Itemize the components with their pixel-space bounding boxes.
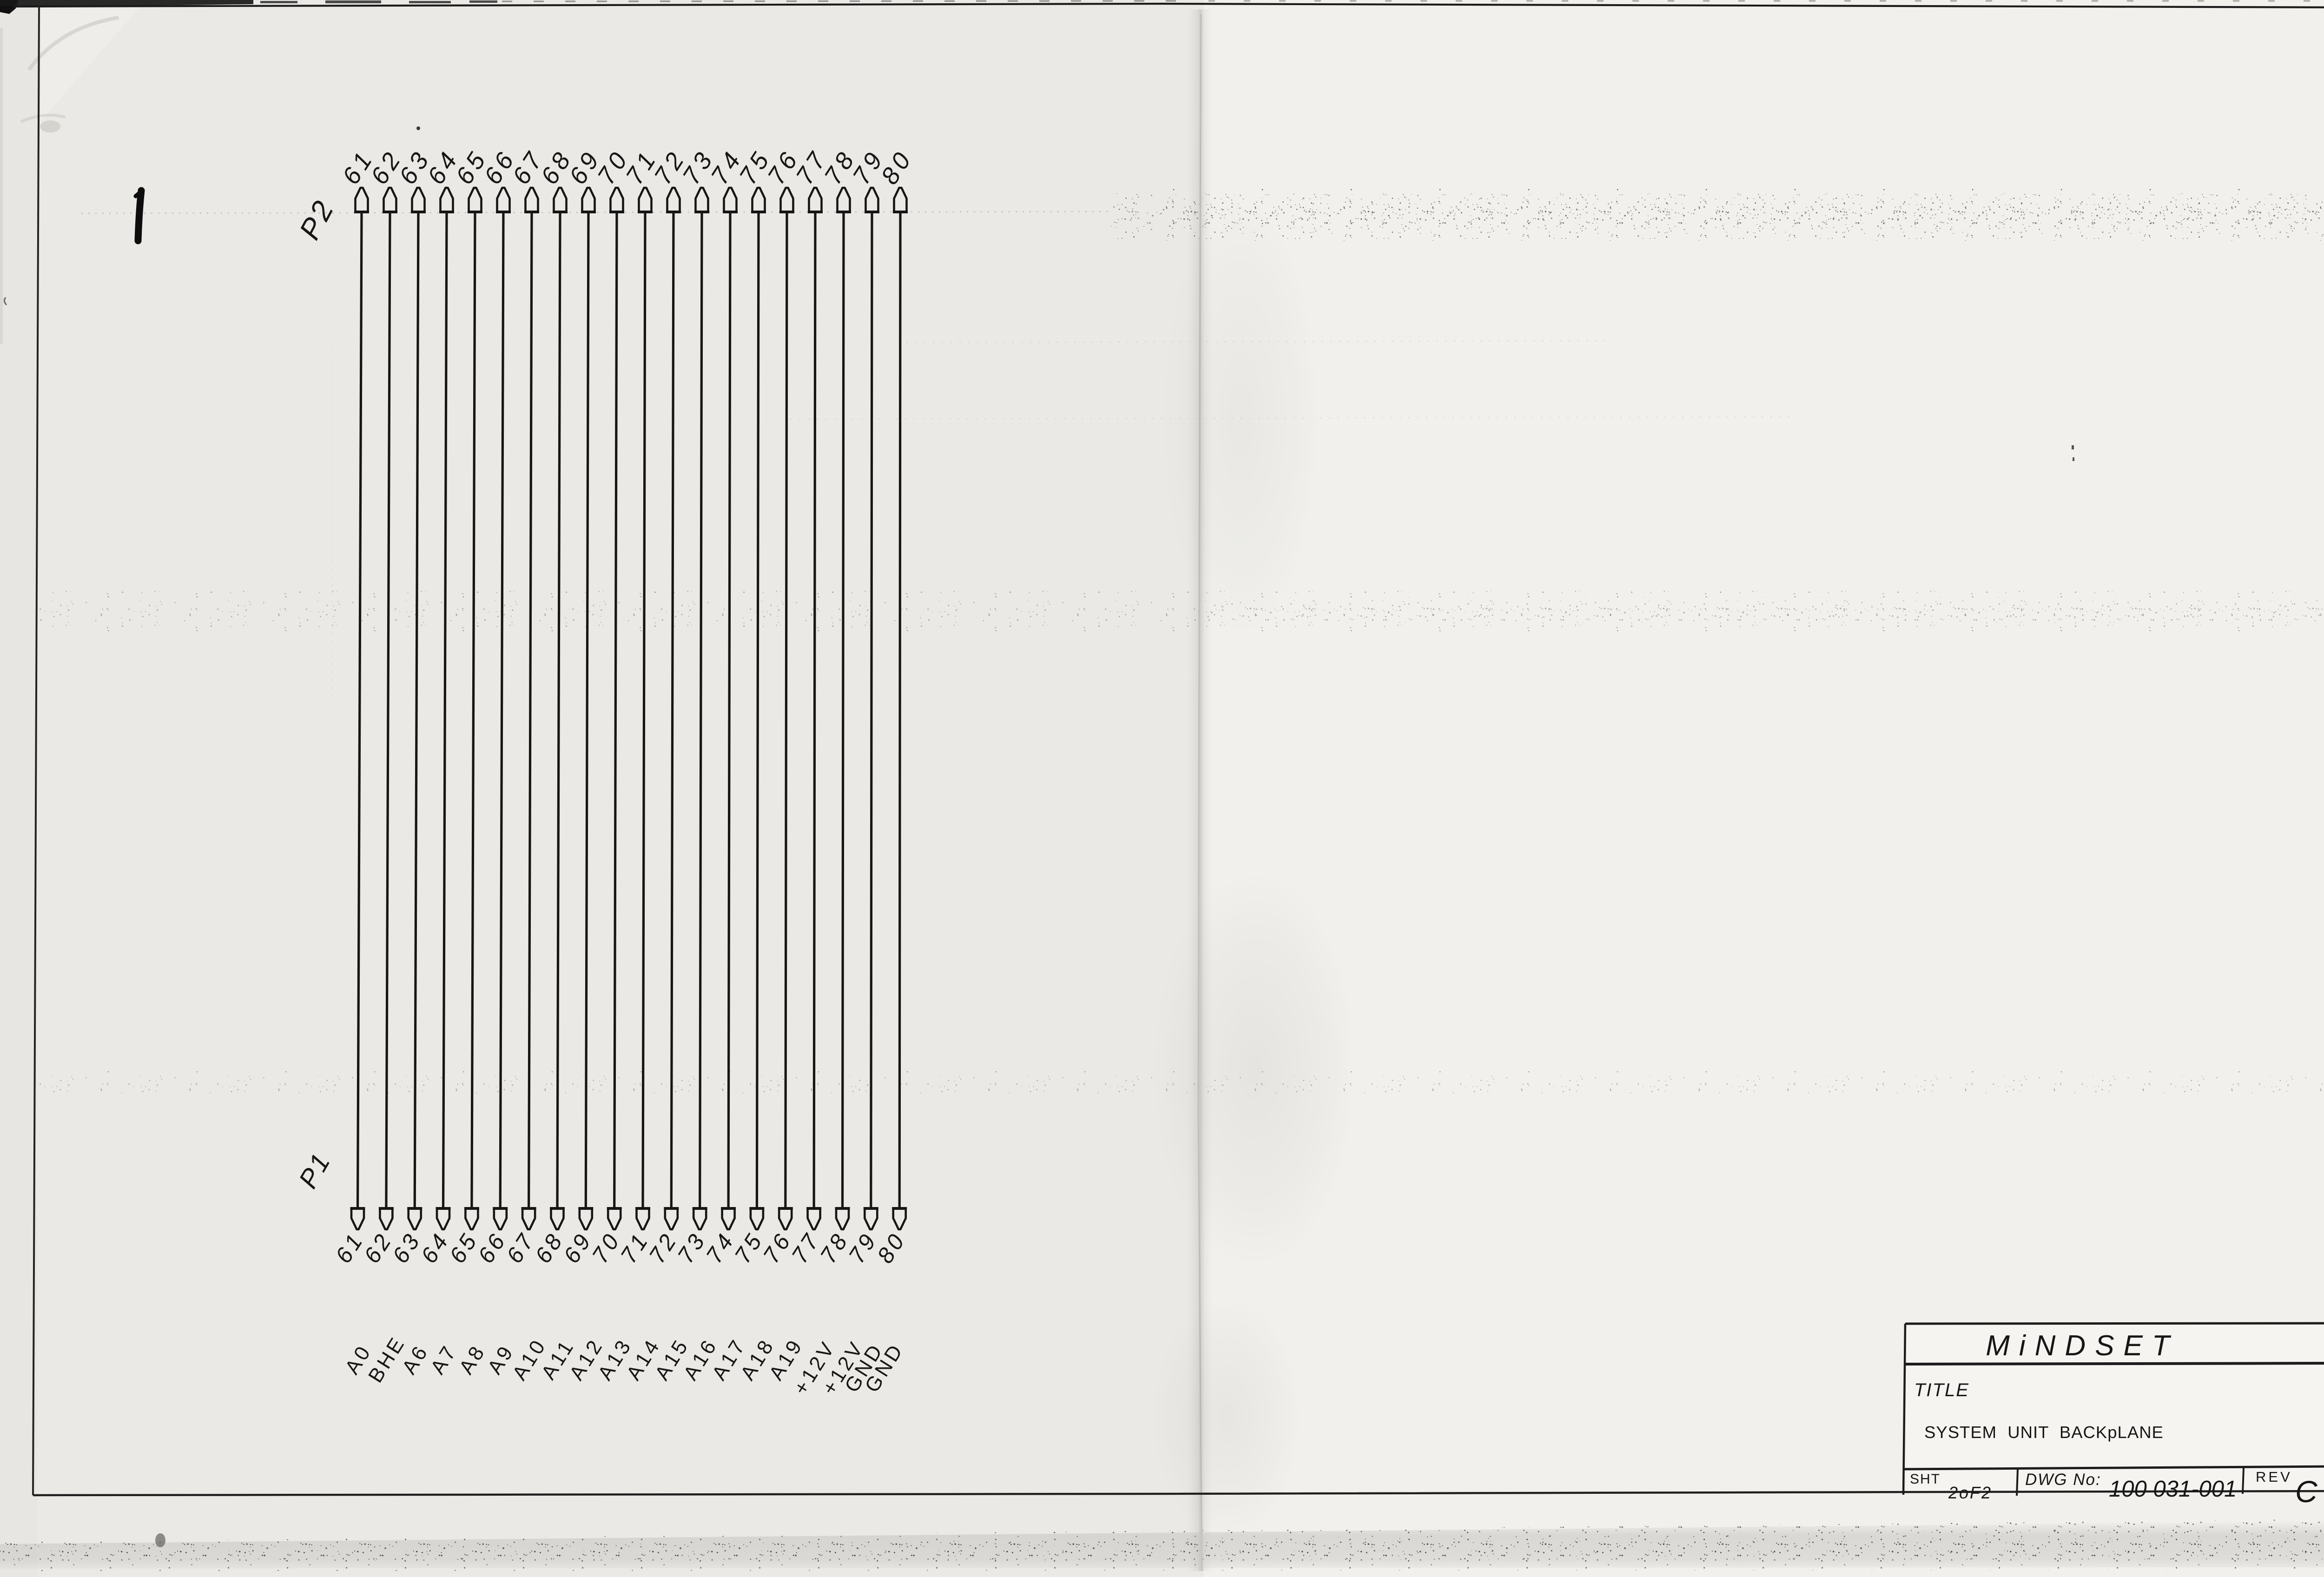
- svg-text:SHT: SHT: [1910, 1471, 1941, 1487]
- svg-text:DWG No:: DWG No:: [2025, 1471, 2101, 1489]
- svg-text:MiNDSET: MiNDSET: [1986, 1330, 2179, 1362]
- svg-text:C: C: [2295, 1474, 2318, 1509]
- svg-text:TITLE: TITLE: [1914, 1380, 1969, 1400]
- svg-text:REV: REV: [2256, 1469, 2292, 1485]
- svg-text:2oF2: 2oF2: [1948, 1483, 1992, 1502]
- svg-text:100 031-001: 100 031-001: [2109, 1477, 2237, 1502]
- svg-text:SYSTEM UNIT BACKpLANE: SYSTEM UNIT BACKpLANE: [1924, 1423, 2164, 1442]
